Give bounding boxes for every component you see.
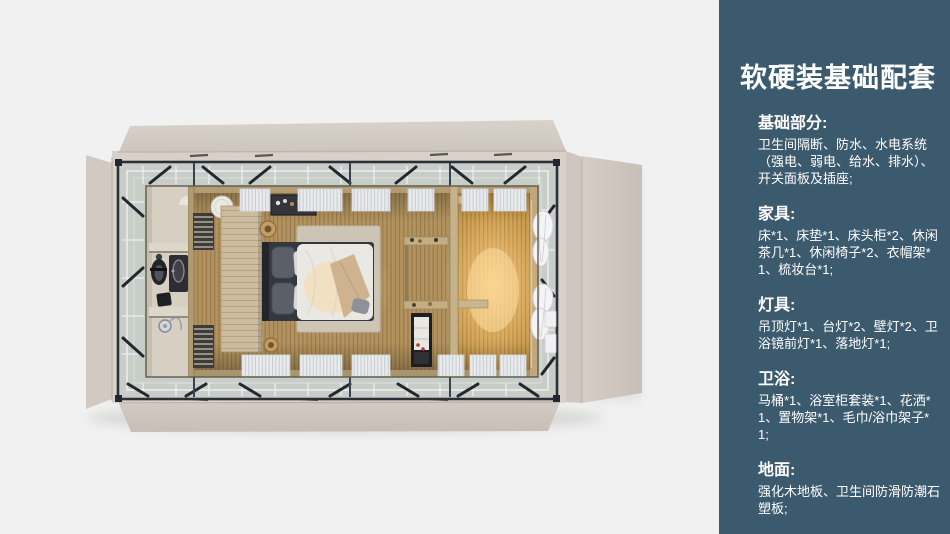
- section-heading: 家具:: [758, 205, 936, 225]
- right-partition: [450, 186, 458, 377]
- headboard: [262, 242, 269, 321]
- pillow: [272, 283, 295, 314]
- section-bathroom: 卫浴: 马桶*1、浴室柜套装*1、花洒*1、置物架*1、毛巾/浴巾架子*1;: [740, 370, 936, 443]
- left-flap: [86, 155, 112, 409]
- panel-title: 软硬装基础配套: [740, 62, 936, 94]
- bench-row-bottom: [242, 355, 526, 376]
- bathroom-vanity: [169, 255, 188, 292]
- section-lighting: 灯具: 吊顶灯*1、台灯*2、壁灯*2、卫浴镜前灯*1、落地灯*1;: [740, 296, 936, 352]
- info-panel: 软硬装基础配套 基础部分: 卫生间隔断、防水、水电系统（强电、弱电、给水、排水）…: [719, 0, 950, 534]
- section-body: 马桶*1、浴室柜套装*1、花洒*1、置物架*1、毛巾/浴巾架子*1;: [758, 392, 940, 443]
- floorplan-svg: [0, 0, 719, 534]
- section-heading: 卫浴:: [758, 370, 936, 390]
- towel-rack: [193, 325, 214, 368]
- bathroom-shelf: [149, 307, 188, 317]
- section-body: 吊顶灯*1、台灯*2、壁灯*2、卫浴镜前灯*1、落地灯*1;: [758, 318, 940, 352]
- floorplan-render: [0, 0, 719, 534]
- pillow: [272, 247, 295, 278]
- right-wall-band: [566, 151, 582, 403]
- section-floor: 地面: 强化木地板、卫生间防滑防潮石塑板;: [740, 461, 936, 517]
- section-furniture: 家具: 床*1、床垫*1、床头柜*2、休闲茶几*1、休闲椅子*2、衣帽架*1、梳…: [740, 205, 936, 278]
- lounge-shelf: [458, 300, 488, 308]
- basket: [260, 221, 276, 237]
- section-heading: 基础部分:: [758, 114, 936, 134]
- slide: 软硬装基础配套 基础部分: 卫生间隔断、防水、水电系统（强电、弱电、给水、排水）…: [0, 0, 950, 534]
- section-body: 强化木地板、卫生间防滑防潮石塑板;: [758, 483, 940, 517]
- display-cabinet: [411, 313, 432, 367]
- towel-rack: [193, 213, 214, 250]
- right-flap: [582, 156, 642, 403]
- bathroom-stool: [156, 292, 172, 307]
- bathroom-shelf: [149, 243, 188, 252]
- wardrobe: [221, 206, 262, 352]
- section-body: 卫生间隔断、防水、水电系统（强电、弱电、给水、排水）、开关面板及插座;: [758, 136, 940, 187]
- section-body: 床*1、床垫*1、床头柜*2、休闲茶几*1、休闲椅子*2、衣帽架*1、梳妆台*1…: [758, 227, 940, 278]
- bottom-flap: [119, 402, 560, 432]
- basket: [264, 338, 278, 352]
- section-basics: 基础部分: 卫生间隔断、防水、水电系统（强电、弱电、给水、排水）、开关面板及插座…: [740, 114, 936, 187]
- section-heading: 灯具:: [758, 296, 936, 316]
- section-heading: 地面:: [758, 461, 936, 481]
